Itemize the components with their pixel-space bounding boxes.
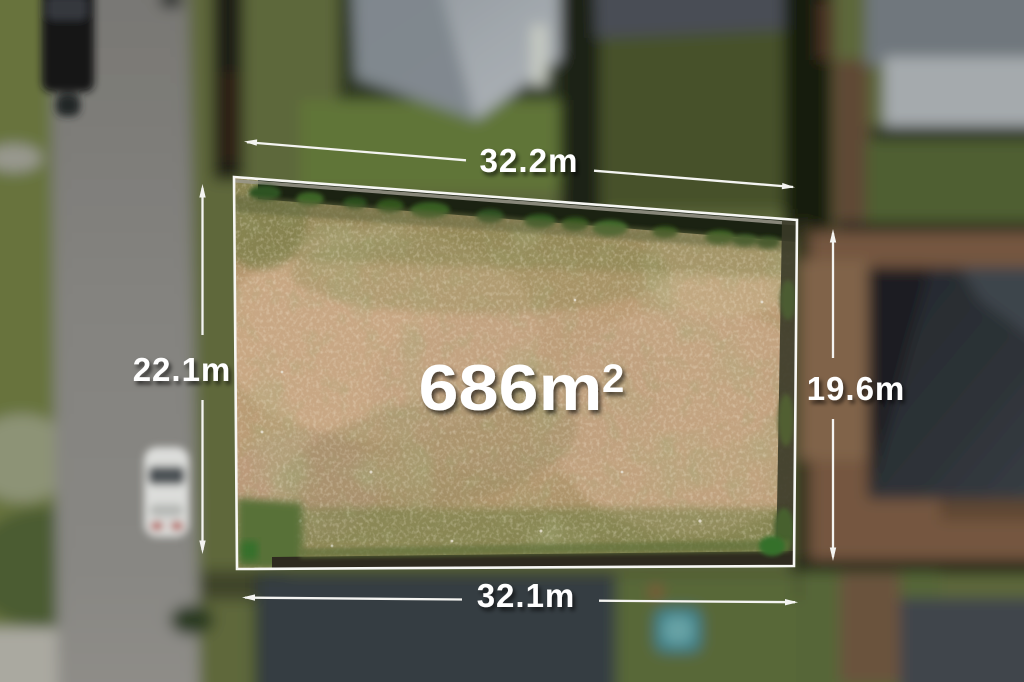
svg-text:32.2m: 32.2m	[480, 142, 579, 179]
svg-text:686m: 686m	[419, 351, 603, 424]
svg-text:32.1m: 32.1m	[477, 577, 576, 614]
svg-text:19.6m: 19.6m	[807, 370, 906, 407]
svg-text:22.1m: 22.1m	[133, 351, 232, 388]
svg-text:2: 2	[602, 357, 624, 401]
